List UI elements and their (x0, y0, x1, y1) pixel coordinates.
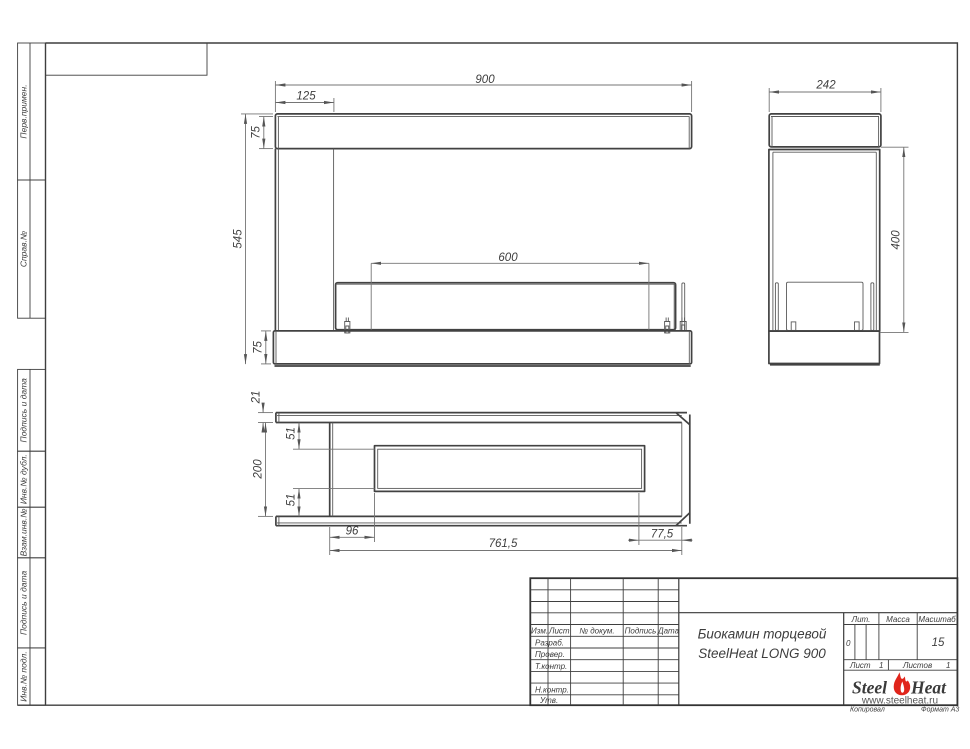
svg-text:21: 21 (251, 391, 263, 405)
svg-text:SteelHeat LONG 900: SteelHeat LONG 900 (698, 646, 826, 661)
svg-text:Подпись и дата: Подпись и дата (19, 378, 29, 443)
svg-text:Steel: Steel (852, 678, 887, 698)
svg-text:Разраб.: Разраб. (535, 639, 564, 648)
svg-text:Формат А3: Формат А3 (921, 707, 959, 714)
svg-text:Утв.: Утв. (539, 696, 558, 705)
svg-text:Т.контр.: Т.контр. (535, 662, 567, 671)
svg-text:Н.контр.: Н.контр. (535, 685, 569, 694)
svg-text:Перв.примен.: Перв.примен. (19, 84, 29, 138)
svg-text:96: 96 (346, 526, 359, 538)
svg-text:51: 51 (286, 494, 298, 507)
svg-text:600: 600 (498, 252, 518, 264)
svg-text:Дата: Дата (657, 627, 680, 636)
svg-text:Биокамин торцевой: Биокамин торцевой (698, 627, 827, 642)
svg-text:Heat: Heat (910, 678, 947, 698)
svg-text:Провер.: Провер. (535, 650, 565, 659)
svg-text:Изм.: Изм. (531, 627, 548, 636)
svg-text:№ докум.: № докум. (579, 627, 614, 636)
svg-text:Подпись и дата: Подпись и дата (19, 570, 29, 635)
svg-text:Копировал: Копировал (850, 707, 885, 714)
svg-text:900: 900 (475, 74, 495, 86)
svg-text:Лит.: Лит. (851, 615, 871, 624)
svg-text:Лист: Лист (548, 627, 570, 636)
svg-text:200: 200 (253, 459, 265, 480)
svg-text:400: 400 (891, 230, 903, 250)
svg-text:77,5: 77,5 (651, 529, 674, 541)
svg-text:Справ.№: Справ.№ (19, 231, 29, 267)
svg-text:Листов: Листов (902, 661, 932, 670)
svg-text:Масса: Масса (886, 615, 910, 624)
svg-text:Масштаб: Масштаб (918, 615, 956, 624)
svg-text:761,5: 761,5 (489, 538, 518, 550)
svg-text:Лист: Лист (849, 661, 871, 670)
svg-text:0: 0 (846, 639, 851, 648)
svg-text:1: 1 (946, 661, 950, 670)
svg-text:Инв.№ подл.: Инв.№ подл. (19, 651, 29, 701)
svg-text:51: 51 (286, 427, 298, 440)
svg-text:1: 1 (879, 661, 883, 670)
svg-text:Подпись: Подпись (625, 627, 657, 636)
svg-text:125: 125 (296, 91, 316, 103)
svg-text:www.steelheat.ru: www.steelheat.ru (861, 696, 938, 707)
svg-text:Взам.инв.№: Взам.инв.№ (19, 509, 29, 557)
svg-text:545: 545 (233, 229, 245, 249)
svg-text:Инв.№ дубл.: Инв.№ дубл. (19, 454, 29, 504)
svg-text:242: 242 (815, 80, 836, 92)
svg-text:15: 15 (932, 637, 945, 649)
svg-text:75: 75 (251, 126, 263, 139)
svg-text:75: 75 (253, 341, 265, 354)
